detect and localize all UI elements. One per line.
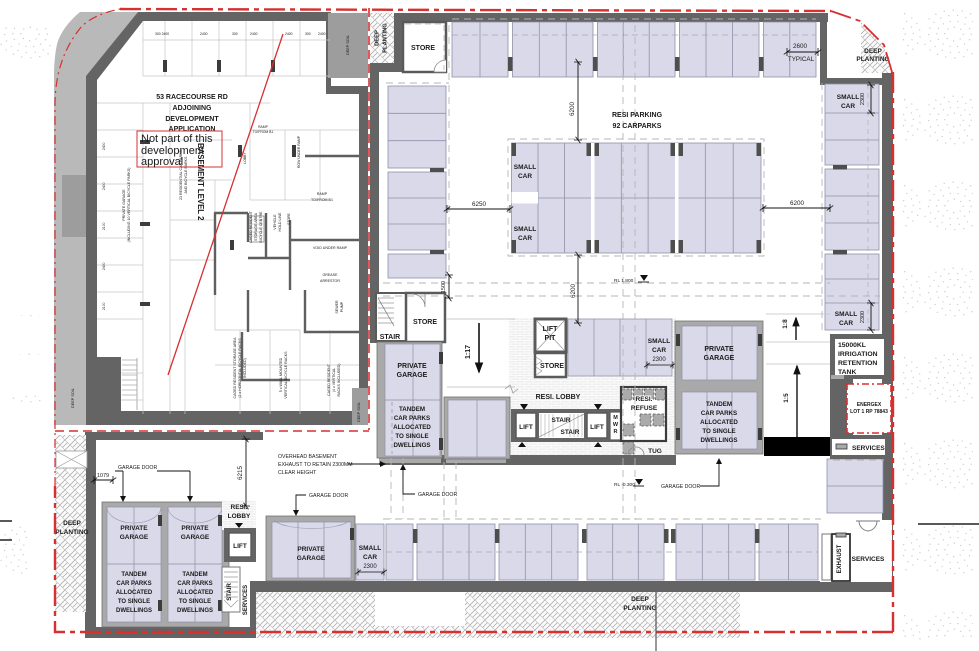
svg-text:DWELLINGS: DWELLINGS <box>700 437 737 444</box>
svg-text:SERVICES: SERVICES <box>243 585 249 615</box>
svg-text:DEEP: DEEP <box>375 30 381 46</box>
svg-text:92 CARPARKS: 92 CARPARKS <box>613 123 662 130</box>
svg-text:STORE: STORE <box>540 363 564 370</box>
svg-text:EXHAUST: EXHAUST <box>837 544 843 573</box>
svg-text:ARRESTOR: ARRESTOR <box>320 279 340 283</box>
svg-text:2300: 2300 <box>860 311 866 323</box>
svg-text:GARAGE DOOR: GARAGE DOOR <box>118 465 157 471</box>
svg-text:2100: 2100 <box>102 222 106 230</box>
svg-text:PLANTING: PLANTING <box>383 23 389 53</box>
svg-text:TANDEM: TANDEM <box>399 406 425 413</box>
svg-text:DWELLINGS: DWELLINGS <box>393 442 430 449</box>
svg-text:TO SINGLE: TO SINGLE <box>118 599 150 605</box>
svg-text:2300: 2300 <box>860 93 866 105</box>
svg-text:LIFT: LIFT <box>543 326 558 333</box>
svg-text:PRIVATE: PRIVATE <box>704 346 734 353</box>
svg-text:RACKS INCLUDED): RACKS INCLUDED) <box>337 364 341 397</box>
svg-text:CAGED RESIDENT STORAGE AREA: CAGED RESIDENT STORAGE AREA <box>233 337 237 399</box>
svg-text:PRIVATE: PRIVATE <box>297 546 325 553</box>
svg-text:6215: 6215 <box>237 466 244 481</box>
svg-text:CLEAR HEIGHT: CLEAR HEIGHT <box>278 470 317 476</box>
svg-text:ROW UNDER RAMP: ROW UNDER RAMP <box>297 135 301 168</box>
svg-text:SMALL: SMALL <box>648 338 670 345</box>
svg-text:2400: 2400 <box>200 32 208 36</box>
svg-text:TANDEM: TANDEM <box>182 572 207 578</box>
svg-text:HOLD LINE: HOLD LINE <box>278 212 282 232</box>
svg-text:RL -0.300: RL -0.300 <box>614 482 635 488</box>
svg-text:SMALL: SMALL <box>514 226 536 233</box>
svg-text:RESI.: RESI. <box>636 396 653 403</box>
svg-text:GARAGE: GARAGE <box>297 555 326 562</box>
svg-text:CAR PARKS: CAR PARKS <box>116 581 151 587</box>
svg-text:GARAGE DOOR: GARAGE DOOR <box>309 493 348 499</box>
svg-text:CAR PARKS: CAR PARKS <box>177 581 212 587</box>
svg-text:ALLOCATED: ALLOCATED <box>116 590 153 596</box>
svg-text:RESI PARKING: RESI PARKING <box>612 112 663 119</box>
svg-text:PLANTING: PLANTING <box>55 529 88 536</box>
svg-text:2600: 2600 <box>793 43 808 50</box>
svg-text:PLANTING: PLANTING <box>856 56 889 63</box>
svg-text:6200: 6200 <box>790 200 805 207</box>
svg-text:STAIR: STAIR <box>551 417 570 424</box>
svg-text:R: R <box>614 429 618 435</box>
svg-text:DEEP: DEEP <box>864 48 882 55</box>
svg-text:(2 x HORIZONTAL BICYCLE RACKS: (2 x HORIZONTAL BICYCLE RACKS <box>238 338 242 398</box>
svg-text:IRRIGATION: IRRIGATION <box>838 351 878 358</box>
svg-text:CAR: CAR <box>841 103 855 110</box>
svg-text:2300: 2300 <box>363 564 377 570</box>
svg-text:GARAGE: GARAGE <box>181 534 210 541</box>
svg-text:LIFT: LIFT <box>519 424 533 431</box>
svg-text:STAIR: STAIR <box>227 583 233 601</box>
svg-text:ENERGEX: ENERGEX <box>857 402 882 408</box>
svg-text:1:5: 1:5 <box>783 393 790 403</box>
svg-text:STORAGE AREA: STORAGE AREA <box>254 212 258 241</box>
svg-text:2300: 2300 <box>652 357 666 363</box>
svg-text:VEHICLE: VEHICLE <box>273 214 277 230</box>
svg-text:Not part of this: Not part of this <box>141 133 213 145</box>
svg-text:RAMP: RAMP <box>258 125 269 129</box>
svg-text:SEWER: SEWER <box>335 300 339 314</box>
svg-text:INCLUDED): INCLUDED) <box>243 358 247 378</box>
svg-text:SMALL: SMALL <box>359 545 381 552</box>
svg-text:GARAGE DOOR: GARAGE DOOR <box>418 492 457 498</box>
svg-text:2400: 2400 <box>318 32 326 36</box>
svg-text:RETENTION: RETENTION <box>838 360 877 367</box>
svg-text:TO/FROM B1: TO/FROM B1 <box>253 130 274 134</box>
svg-text:1079: 1079 <box>97 473 109 479</box>
svg-text:2400: 2400 <box>285 32 293 36</box>
svg-text:ALLOCATED: ALLOCATED <box>177 590 214 596</box>
svg-text:GARAGE: GARAGE <box>120 534 149 541</box>
svg-text:DEEP SOIL: DEEP SOIL <box>346 35 350 55</box>
svg-text:53 RACECOURSE RD: 53 RACECOURSE RD <box>156 94 228 101</box>
svg-text:2100: 2100 <box>102 302 106 310</box>
svg-text:DEEP SOIL: DEEP SOIL <box>357 402 361 422</box>
svg-text:DEEP SOIL: DEEP SOIL <box>71 388 75 408</box>
svg-text:TYPICAL: TYPICAL <box>788 56 815 63</box>
svg-text:RESI. LOBBY: RESI. LOBBY <box>536 394 581 401</box>
svg-text:DEEP: DEEP <box>631 596 649 603</box>
svg-text:AND BICYCLE PARKS: AND BICYCLE PARKS <box>184 156 188 193</box>
svg-text:SMALL: SMALL <box>835 311 857 318</box>
svg-text:CAGED RESIDENT: CAGED RESIDENT <box>327 363 331 396</box>
svg-text:CAR: CAR <box>518 235 532 242</box>
svg-text:approval: approval <box>141 156 183 168</box>
svg-text:DEEP: DEEP <box>63 520 81 527</box>
svg-text:W: W <box>613 422 619 428</box>
svg-text:ALLOCATED: ALLOCATED <box>700 419 738 426</box>
svg-text:6200: 6200 <box>570 284 577 299</box>
svg-text:DWELLINGS: DWELLINGS <box>177 608 213 614</box>
svg-text:ADJOINING: ADJOINING <box>173 105 212 112</box>
svg-text:STORE: STORE <box>287 212 291 224</box>
svg-text:300 2400: 300 2400 <box>155 32 169 36</box>
svg-text:TANDEM: TANDEM <box>121 572 146 578</box>
svg-text:GREASE: GREASE <box>323 273 339 277</box>
svg-text:STORE: STORE <box>413 319 437 326</box>
svg-text:STAIR: STAIR <box>560 429 579 436</box>
svg-text:STAIR: STAIR <box>380 334 400 341</box>
svg-text:2400: 2400 <box>102 262 106 270</box>
svg-text:6250: 6250 <box>472 201 487 208</box>
svg-text:RAMP: RAMP <box>317 192 328 196</box>
svg-text:DWELLINGS: DWELLINGS <box>116 608 152 614</box>
svg-text:TO SINGLE: TO SINGLE <box>702 428 735 435</box>
svg-text:DEVELOPMENT: DEVELOPMENT <box>165 116 219 123</box>
svg-text:SMALL: SMALL <box>837 94 859 101</box>
svg-text:LOT 1 RP 78843: LOT 1 RP 78843 <box>850 409 888 415</box>
svg-text:(4 x VERTICAL: (4 x VERTICAL <box>332 368 336 393</box>
svg-text:LOBBY: LOBBY <box>243 152 247 164</box>
svg-text:TUG: TUG <box>648 448 662 455</box>
svg-text:CAR: CAR <box>363 554 377 561</box>
svg-text:PRIVATE: PRIVATE <box>397 363 427 370</box>
svg-text:CAR: CAR <box>839 320 853 327</box>
svg-text:PUMP: PUMP <box>340 301 344 312</box>
svg-text:APPLICATION: APPLICATION <box>169 126 216 133</box>
svg-text:PIT: PIT <box>545 335 557 342</box>
svg-text:PRIVATE: PRIVATE <box>120 525 148 532</box>
svg-text:GARAGE: GARAGE <box>397 372 428 379</box>
svg-text:1500: 1500 <box>441 281 447 293</box>
svg-text:1:8: 1:8 <box>782 319 789 329</box>
svg-text:M: M <box>613 415 618 421</box>
svg-text:PRIVATE GARAGE: PRIVATE GARAGE <box>122 189 126 221</box>
svg-text:TO SINGLE: TO SINGLE <box>179 599 211 605</box>
svg-text:CAR: CAR <box>518 173 532 180</box>
svg-text:SERVICES: SERVICES <box>852 445 885 452</box>
svg-text:15000KL: 15000KL <box>838 342 866 349</box>
svg-text:CAR PARKS: CAR PARKS <box>394 415 430 422</box>
svg-text:300: 300 <box>232 32 238 36</box>
svg-text:2400: 2400 <box>102 182 106 190</box>
svg-text:RL 1.800: RL 1.800 <box>614 278 634 284</box>
svg-text:OVERHEAD BASEMENT: OVERHEAD BASEMENT <box>278 454 338 460</box>
svg-text:CAR PARKS: CAR PARKS <box>701 410 737 417</box>
svg-text:EXHAUST TO RETAIN 2300MM: EXHAUST TO RETAIN 2300MM <box>278 462 353 468</box>
svg-text:2400: 2400 <box>250 32 258 36</box>
svg-text:GARAGE: GARAGE <box>704 355 735 362</box>
svg-text:GARAGE DOOR: GARAGE DOOR <box>661 484 700 490</box>
svg-text:TANDEM: TANDEM <box>706 401 732 408</box>
svg-text:BICYCLE CENTRE: BICYCLE CENTRE <box>259 211 263 243</box>
svg-text:SMALL: SMALL <box>514 164 536 171</box>
svg-text:TANK: TANK <box>838 369 856 376</box>
svg-text:LOBBY: LOBBY <box>228 513 251 520</box>
svg-text:PRIVATE: PRIVATE <box>181 525 209 532</box>
svg-text:VERTICAL BICYCLE RACKS: VERTICAL BICYCLE RACKS <box>284 351 288 399</box>
svg-text:CAR: CAR <box>652 347 666 354</box>
svg-text:2400: 2400 <box>102 142 106 150</box>
svg-text:300: 300 <box>305 32 311 36</box>
svg-text:STORE: STORE <box>411 45 435 52</box>
svg-text:LIFT: LIFT <box>233 543 247 550</box>
svg-text:PLANTING: PLANTING <box>623 605 656 612</box>
svg-text:RESI.: RESI. <box>231 504 248 511</box>
svg-text:LIFT: LIFT <box>590 424 604 431</box>
svg-text:VOID UNDER RAMP: VOID UNDER RAMP <box>313 246 348 250</box>
svg-text:1:17: 1:17 <box>465 345 472 359</box>
svg-text:TO/FROM B1: TO/FROM B1 <box>311 198 333 202</box>
svg-text:6200: 6200 <box>569 102 576 117</box>
svg-text:SERVICES: SERVICES <box>852 556 885 563</box>
svg-text:TO SINGLE: TO SINGLE <box>395 433 428 440</box>
svg-text:ALLOCATED: ALLOCATED <box>393 424 431 431</box>
svg-text:5 x WALL MOUNTED: 5 x WALL MOUNTED <box>279 357 283 392</box>
svg-text:(INCLUDING 10 VERTICAL BICYCLE: (INCLUDING 10 VERTICAL BICYCLE PARKS) <box>127 168 131 243</box>
svg-text:CAGED RESIDENT: CAGED RESIDENT <box>249 210 253 243</box>
